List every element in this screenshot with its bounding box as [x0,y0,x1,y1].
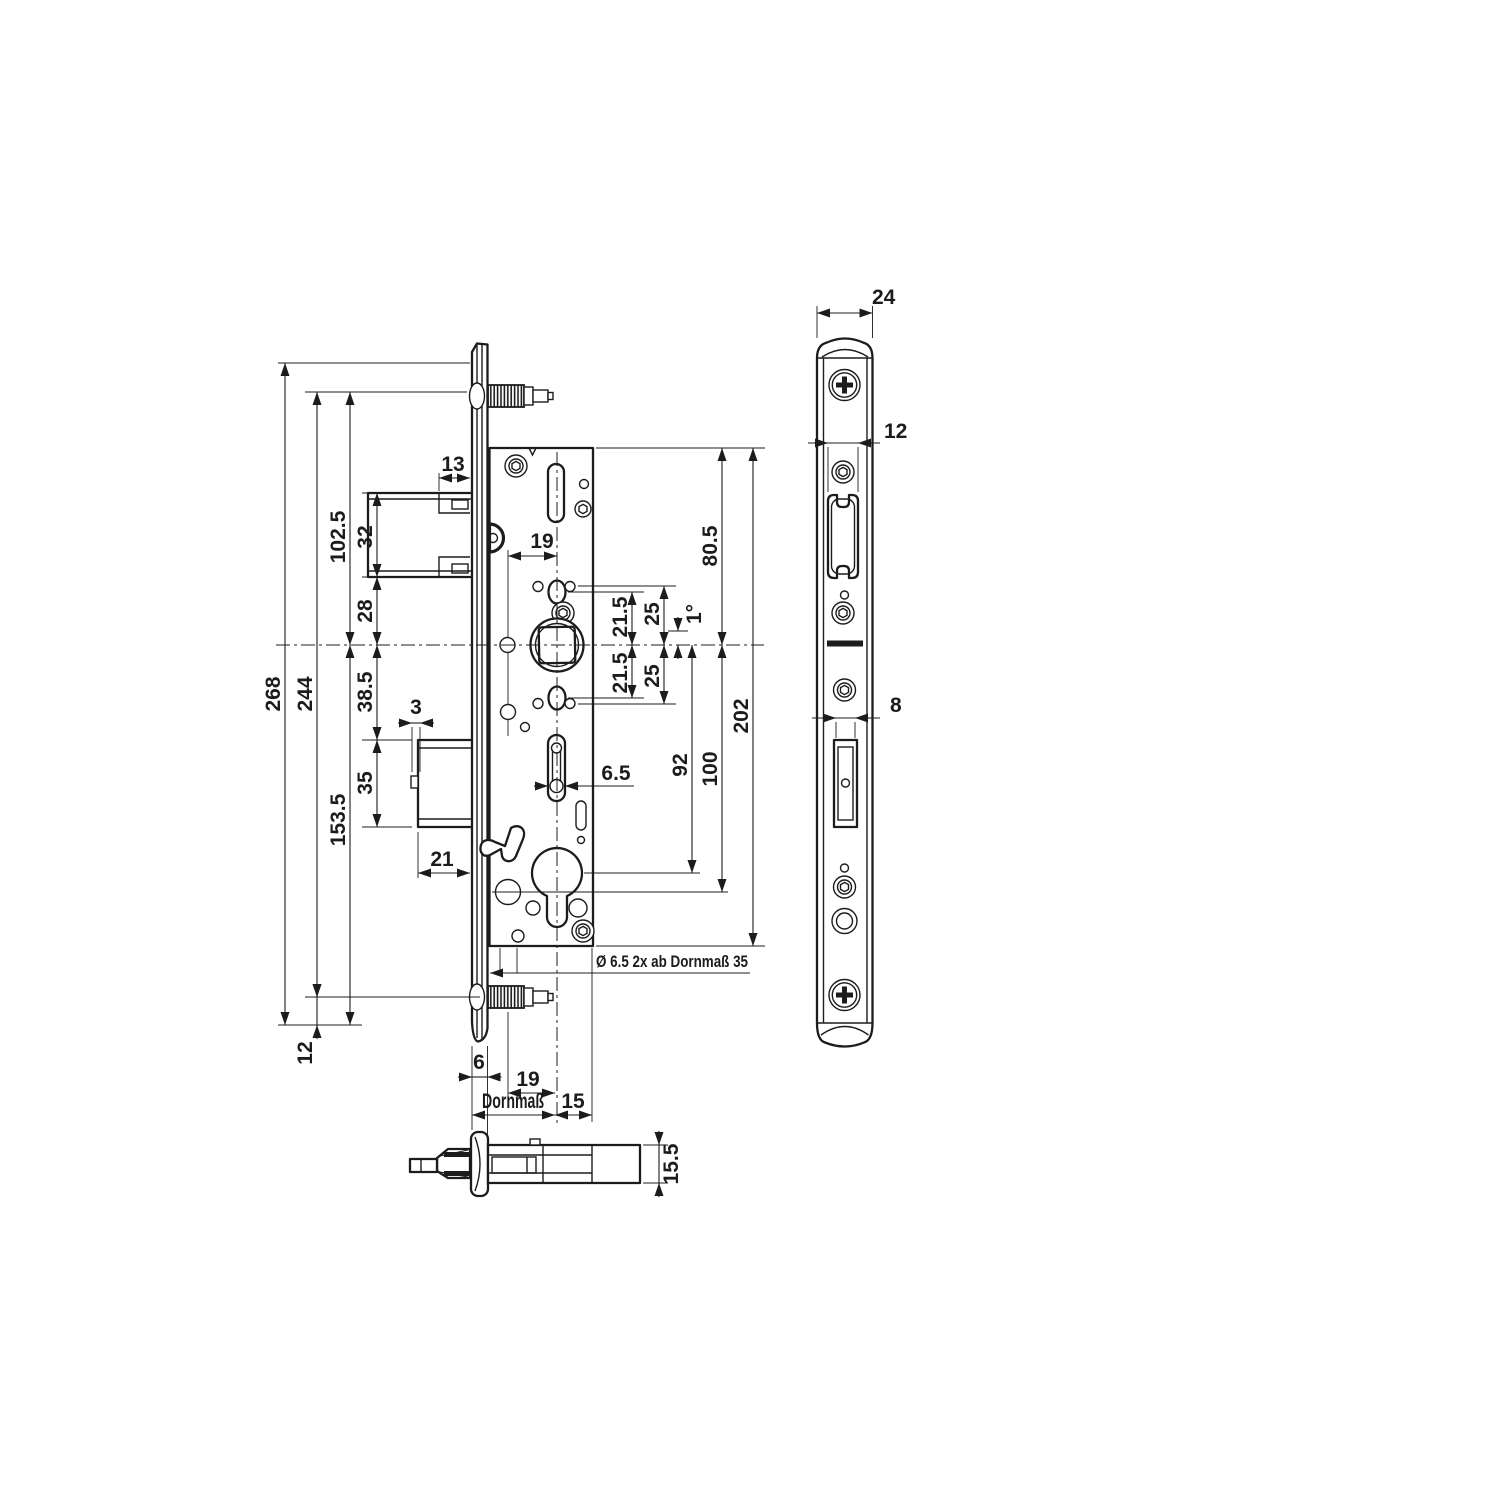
dim-label-13: 13 [441,453,464,476]
dim-label-80-5: 80.5 [699,525,722,566]
hex-hole [575,501,591,517]
hole-small [580,480,589,489]
dim-label-19-top: 19 [530,530,553,553]
dim-label-8: 8 [890,694,902,717]
phillips-screw-icon [829,370,860,401]
dim-label-15-5: 15.5 [660,1143,683,1184]
dim-label-25-upper: 25 [641,602,664,626]
dim-label-12-front: 12 [884,420,907,443]
dim-label-102-5: 102.5 [327,510,350,563]
torx-screw-icon [832,461,854,483]
dim-label-25-lower: 25 [641,664,664,688]
dim-label-244: 244 [294,676,317,711]
dim-label-21-5-lower: 21.5 [609,652,632,693]
drawing-page: 268 244 102.5 153.5 12 32 28 38.5 35 [0,0,1500,1500]
torx-screw-icon [572,920,594,942]
dim-label-12: 12 [294,1041,317,1064]
dim-label-3: 3 [410,696,422,719]
latch-assembly-side [368,493,476,577]
dim-label-1deg: 1° [683,604,706,624]
torx-screw-icon [505,455,527,477]
small-hole [841,591,849,599]
dim-label-24: 24 [872,286,896,309]
dim-label-28: 28 [354,599,377,623]
dim-label-6-5: 6.5 [601,762,631,785]
dim-label-38-5: 38.5 [354,671,377,712]
torx-screw-icon [832,602,854,624]
torx-screw-icon [834,679,856,701]
cylinder-screw-opening [832,909,857,934]
case-bottom-section [488,1145,640,1183]
phillips-screw-icon [829,980,860,1011]
dim-label-100: 100 [699,751,722,786]
dim-label-dornmass: Dornmaß [482,1090,544,1113]
dim-label-21: 21 [430,848,454,871]
dim-label-6: 6 [473,1051,485,1074]
front-view-faceplate [817,339,873,1047]
dim-label-202: 202 [730,698,753,733]
dim-label-92: 92 [669,753,692,776]
torx-screw-icon [834,876,856,898]
dim-label-35: 35 [354,771,377,795]
latch-trigger-bump [490,524,504,552]
background [0,0,1500,1500]
dim-label-153-5: 153.5 [327,793,350,846]
marking-line [827,641,863,647]
faceplate-side [472,344,488,1042]
dim-label-15: 15 [561,1090,585,1113]
hole-note-label: Ø 6.5 2x ab Dornmaß 35 [596,952,748,971]
dim-label-19-bottom: 19 [516,1068,539,1091]
dim-label-268: 268 [262,676,285,711]
deadbolt-side [411,740,476,827]
dim-label-21-5-upper: 21.5 [609,596,632,637]
technical-drawing-canvas: 268 244 102.5 153.5 12 32 28 38.5 35 [0,0,1500,1500]
dim-label-32: 32 [354,525,377,548]
